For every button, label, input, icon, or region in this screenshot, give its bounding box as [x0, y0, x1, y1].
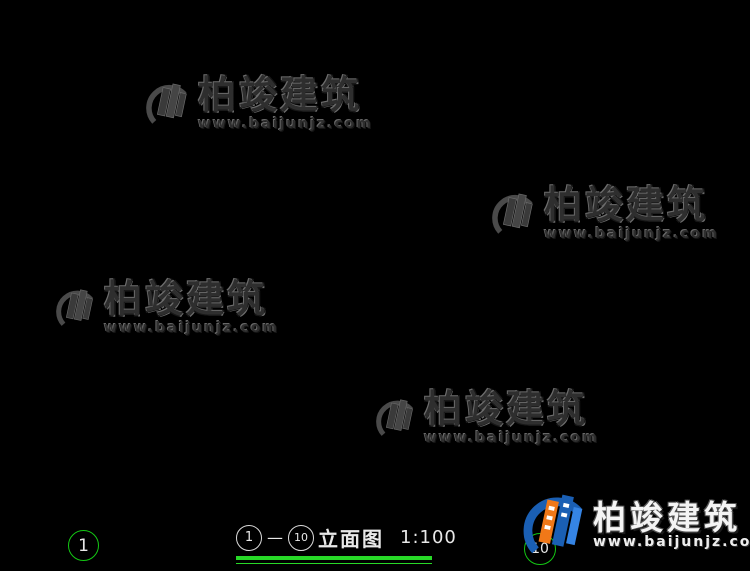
title-underline-thick	[236, 556, 432, 560]
axis-number: 1	[78, 536, 89, 556]
drawing-title: 立面图	[318, 523, 384, 552]
brand-logo: 柏竣建筑 www.baijunjz.com	[523, 486, 750, 564]
axis-bubble-1: 1	[68, 530, 99, 561]
brand-text: 柏竣建筑	[593, 501, 750, 534]
cad-elevation-screenshot: { "watermark": { "text": "柏竣建筑", "url": …	[0, 0, 750, 571]
drawing-scale: 1:100	[400, 527, 457, 548]
axis-ref-start: 1	[236, 525, 262, 551]
axis-ref-end: 10	[288, 525, 314, 551]
title-underline-thin	[236, 563, 432, 564]
axis-range-dash: —	[267, 528, 283, 547]
brand-logo-icon	[523, 486, 587, 564]
brand-url: www.baijunjz.com	[593, 534, 750, 550]
drawing-title-block: 1 — 10 立面图 1:100	[236, 523, 446, 564]
